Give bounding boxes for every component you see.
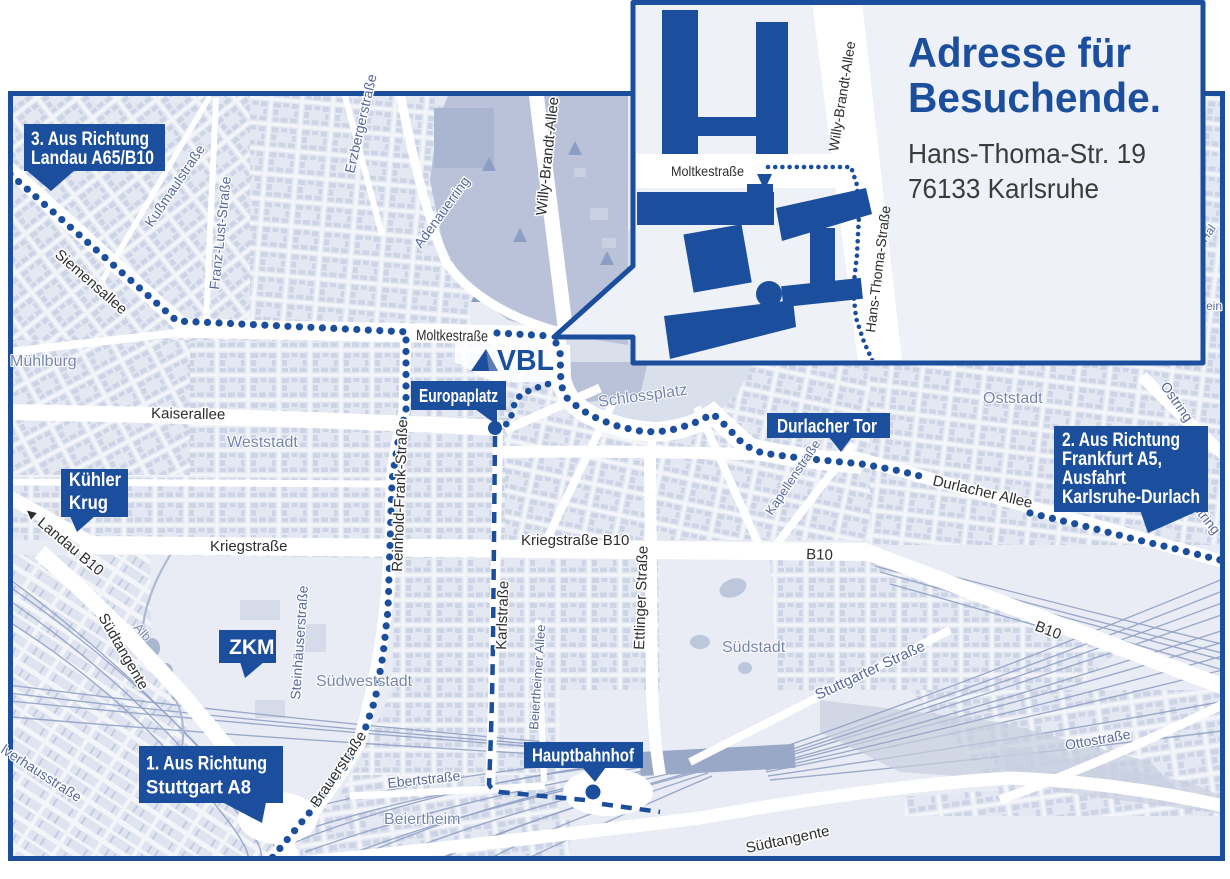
svg-text:3. Aus Richtung: 3. Aus Richtung: [31, 129, 149, 150]
svg-text:Ettlinger Straße: Ettlinger Straße: [631, 545, 652, 650]
svg-text:Mühlburg: Mühlburg: [10, 353, 77, 370]
svg-text:Südstadt: Südstadt: [722, 639, 786, 656]
svg-text:Krug: Krug: [69, 493, 108, 514]
svg-text:ZKM: ZKM: [229, 636, 275, 659]
svg-text:Europaplatz: Europaplatz: [419, 386, 498, 406]
svg-text:Stuttgart A8: Stuttgart A8: [146, 777, 251, 798]
svg-text:Frankfurt A5,: Frankfurt A5,: [1062, 449, 1162, 470]
svg-text:Kaiserallee: Kaiserallee: [151, 405, 226, 423]
svg-text:Oststadt: Oststadt: [983, 390, 1043, 407]
svg-text:VBL: VBL: [497, 345, 554, 377]
svg-text:ein: ein: [1206, 299, 1222, 313]
svg-text:B10: B10: [806, 546, 833, 564]
svg-text:Hans-Thoma-Str. 19: Hans-Thoma-Str. 19: [908, 138, 1146, 169]
svg-text:Beiertheim: Beiertheim: [384, 811, 460, 828]
svg-text:Weststadt: Weststadt: [227, 434, 298, 451]
svg-text:Kriegstraße B10: Kriegstraße B10: [521, 532, 629, 549]
svg-text:76133 Karlsruhe: 76133 Karlsruhe: [908, 173, 1099, 204]
svg-text:Ausfahrt: Ausfahrt: [1062, 468, 1127, 489]
svg-text:Kühler: Kühler: [69, 470, 122, 491]
svg-text:Moltkestraße: Moltkestraße: [416, 327, 488, 345]
svg-text:2. Aus Richtung: 2. Aus Richtung: [1062, 430, 1180, 451]
svg-text:Hauptbahnhof: Hauptbahnhof: [532, 746, 635, 766]
svg-text:Karlsruhe-Durlach: Karlsruhe-Durlach: [1062, 487, 1200, 508]
svg-text:Kriegstraße: Kriegstraße: [210, 538, 288, 555]
svg-text:Adresse für: Adresse für: [908, 29, 1131, 76]
svg-text:Moltkestraße: Moltkestraße: [671, 163, 744, 179]
svg-text:Karlstraße: Karlstraße: [493, 580, 512, 650]
svg-text:Durlacher Tor: Durlacher Tor: [777, 416, 877, 437]
svg-text:Besuchende.: Besuchende.: [908, 74, 1161, 121]
svg-text:Südweststadt: Südweststadt: [316, 673, 413, 690]
svg-text:1. Aus Richtung: 1. Aus Richtung: [146, 753, 267, 774]
svg-text:Landau A65/B10: Landau A65/B10: [31, 148, 154, 169]
